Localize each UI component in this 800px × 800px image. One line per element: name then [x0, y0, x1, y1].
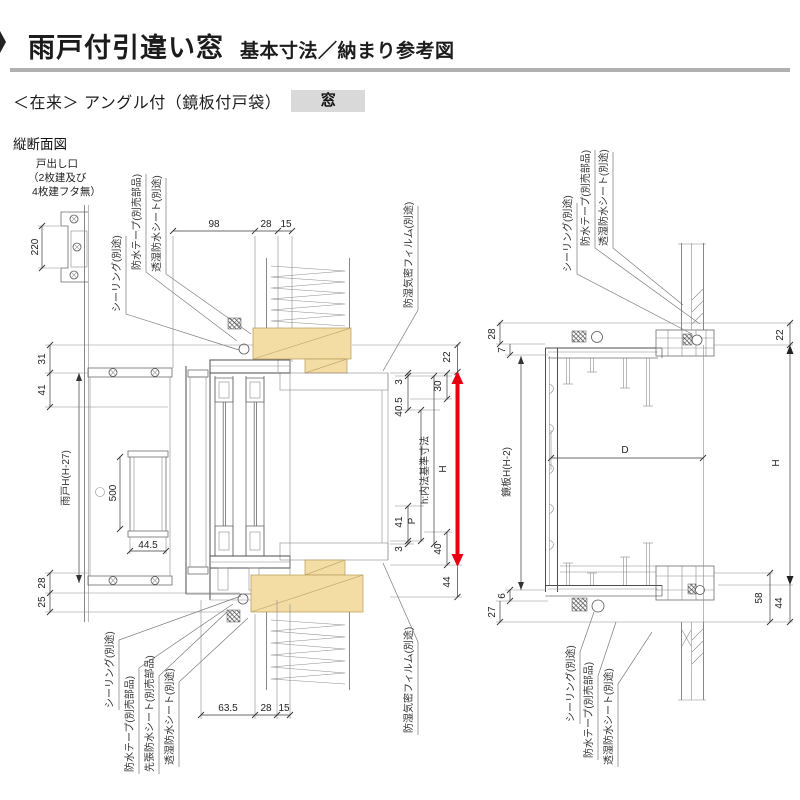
dim-chain-right: 3 40.5 41 3 P h:内法基準寸法 30	[390, 342, 464, 600]
dim-22: 22	[775, 329, 786, 341]
dim-P: P	[407, 517, 418, 524]
screw-icon	[70, 271, 78, 279]
label-sheet: 透湿防水シート(別途)	[150, 175, 163, 272]
insulation-batt	[271, 266, 345, 326]
label-tape: 防水テープ(別売部品)	[130, 174, 143, 270]
dim-27: 27	[487, 606, 498, 618]
label-inner-standard: h:内法基準寸法	[418, 436, 431, 504]
dim-63_5: 63.5	[218, 703, 238, 714]
note-line3: 4枚建フタ無）	[32, 185, 101, 198]
dim-98: 98	[208, 219, 220, 230]
catalog-page: 雨戸付引違い窓 基本寸法／納まり参考図 ＜在来＞ アングル付（鏡板付戸袋） 窓 …	[0, 0, 800, 800]
right-dims: 28 7 鏡板H(H-2) 6 27	[487, 320, 794, 625]
right-diagram: シーリング(別途) 防水テープ(別売部品) 透湿防水シート(別途)	[487, 149, 794, 767]
label-sealing: シーリング(別途)	[561, 195, 574, 272]
label-sealing: シーリング(別途)	[564, 645, 577, 722]
label-shutter-h: 雨戸H(H-27)	[60, 450, 72, 506]
label-sheet: 透湿防水シート(別途)	[163, 668, 176, 765]
dim-28-left: 28	[37, 577, 48, 589]
screw-icon	[151, 577, 159, 585]
dim-15-bottom: 15	[278, 703, 290, 714]
seal-detail-bottom	[227, 594, 248, 622]
hanger-clips-bottom	[563, 543, 653, 585]
label-mirror-board-h: 鏡板H(H-2)	[500, 447, 513, 497]
section-drawing: 戸出し口 （2枚建及び 4枚建フタ無）	[0, 0, 800, 800]
screw-icon	[151, 369, 159, 377]
dim-44: 44	[442, 576, 453, 588]
window-frame-section	[186, 360, 290, 600]
right-upper-wall	[678, 243, 706, 330]
dim-44: 44	[774, 597, 785, 609]
dim-3-top: 3	[394, 379, 405, 385]
screw-icon	[73, 243, 81, 251]
dim-40_5: 40.5	[394, 397, 405, 417]
interior-board-top	[280, 373, 388, 390]
dim-opening: 500 44.5	[108, 454, 169, 554]
shutter-panel	[190, 377, 206, 567]
dim-25: 25	[37, 596, 48, 608]
label-tape: 防水テープ(別売部品)	[123, 676, 136, 772]
dim-7: 7	[497, 347, 508, 353]
mirror-board	[546, 348, 558, 592]
dim-6: 6	[497, 593, 508, 599]
label-sheet: 透湿防水シート(別途)	[602, 668, 615, 765]
dim-40: 40	[433, 543, 444, 555]
pocket-outer-wall-line	[85, 205, 89, 622]
dim-44_5: 44.5	[138, 540, 158, 551]
dim-D: D	[621, 445, 628, 456]
label-film: 防湿気密フィルム(別途)	[402, 627, 415, 733]
label-tape: 防水テープ(別売部品)	[579, 150, 592, 246]
dim-41-right: 41	[394, 516, 405, 528]
dim-outlet-220: 220	[30, 238, 41, 255]
screw-icon	[70, 215, 78, 223]
dim-28-bottom: 28	[260, 703, 272, 714]
door-outlet-bracket: 220	[30, 212, 88, 282]
dim-22: 22	[442, 351, 453, 363]
dim-shutter-height: 雨戸H(H-27)	[60, 373, 82, 583]
screw-icon	[109, 577, 117, 585]
seal-block	[683, 334, 692, 345]
seal-block	[688, 584, 696, 594]
outer-sash	[215, 376, 233, 556]
label-sealing: シーリング(別途)	[103, 631, 116, 708]
right-top-annotations: シーリング(別途) 防水テープ(別売部品) 透湿防水シート(別途)	[561, 149, 700, 334]
dim-3-bottom: 3	[394, 546, 405, 552]
dim-41-left: 41	[37, 384, 48, 396]
seal-block	[572, 598, 587, 611]
page-corner-mark	[0, 31, 6, 53]
label-tape: 防水テープ(別売部品)	[582, 662, 595, 758]
right-bottom-annotations: シーリング(別途) 防水テープ(別売部品) 透湿防水シート(別途)	[564, 612, 652, 767]
dim-500: 500	[108, 484, 119, 501]
interior-board-bottom	[280, 543, 388, 560]
outlet-opening-cap-top	[128, 451, 168, 457]
label-film: 防湿気密フィルム(別途)	[402, 202, 415, 308]
door-outlet-note: 戸出し口 （2枚建及び 4枚建フタ無）	[28, 157, 101, 198]
label-pre-sheet: 先張防水シート(別売部品)	[143, 655, 156, 772]
dim-31: 31	[37, 353, 48, 365]
seal-detail-top	[228, 318, 249, 354]
left-diagram: 戸出し口 （2枚建及び 4枚建フタ無）	[28, 157, 464, 774]
pocket-case	[546, 348, 663, 596]
outlet-opening-cap-bottom	[128, 531, 168, 537]
dim-H: H	[438, 465, 449, 472]
inner-sash	[246, 376, 264, 556]
hanger-clips-top	[563, 358, 653, 406]
label-sealing: シーリング(別途)	[110, 235, 123, 312]
dim-H: H	[771, 459, 782, 466]
dim-58: 58	[754, 592, 765, 604]
dim-30: 30	[433, 380, 444, 392]
lower-wall	[251, 560, 363, 690]
dim-28-top: 28	[260, 219, 272, 230]
insulation-batt	[271, 620, 345, 684]
height-arrow	[452, 371, 464, 567]
knockout-hole	[96, 488, 105, 497]
note-line1: 戸出し口	[36, 157, 78, 170]
seal-block	[572, 331, 586, 342]
dim-15-top: 15	[280, 219, 292, 230]
upper-wall	[253, 258, 351, 373]
right-lower-wall	[678, 622, 706, 700]
note-line2: （2枚建及び	[28, 171, 87, 184]
dim-28: 28	[487, 328, 498, 340]
screw-icon	[109, 369, 117, 377]
label-sheet: 透湿防水シート(別途)	[597, 149, 610, 246]
